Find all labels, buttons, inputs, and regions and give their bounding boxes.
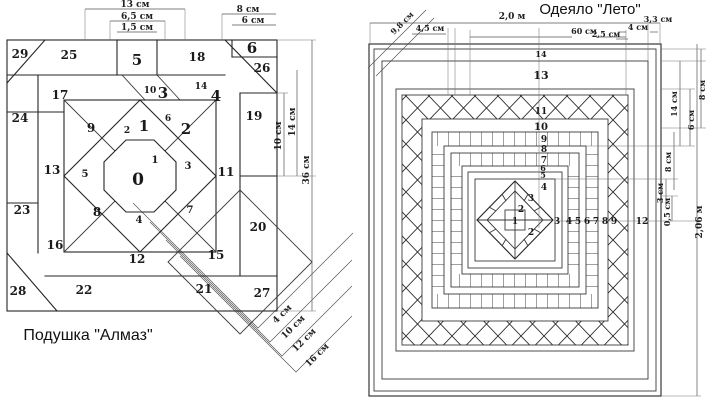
piece-9: 9 (87, 121, 95, 135)
piece-15: 15 (208, 248, 225, 262)
pillow-caption: Подушка "Алмаз" (23, 327, 152, 344)
piece-19: 19 (246, 109, 263, 123)
dim-2-06m: 2,06 м (695, 205, 705, 238)
piece-6-small: 6 (165, 114, 171, 124)
dim-1-5cm: 1,5 см (121, 23, 153, 33)
dim-2-5cm: 2,5 см (592, 29, 621, 39)
band-3-top: 3 (528, 194, 534, 204)
piece-24: 24 (12, 111, 29, 125)
piece-23: 23 (14, 203, 31, 217)
dim-13cm: 13 см (121, 0, 150, 10)
row-9: 9 (611, 217, 617, 227)
dim-6-5cm: 6,5 см (121, 12, 153, 22)
dim-4-5cm: 4,5 см (416, 23, 445, 33)
pillow-diamond-diagram: 13 см 6,5 см 1,5 см 8 см 6 см 10 см 14 с… (0, 0, 360, 405)
piece-26: 26 (254, 61, 271, 75)
piece-13: 13 (44, 163, 61, 177)
piece-8: 8 (93, 205, 101, 219)
piece-22: 22 (76, 283, 93, 297)
piece-4-small: 4 (136, 215, 143, 226)
piece-2-small: 2 (124, 126, 130, 136)
band-8: 8 (541, 145, 547, 155)
row-5: 5 (575, 217, 581, 227)
dim-10cm-right: 10 см (274, 121, 284, 150)
dim-2-0m: 2,0 м (499, 12, 526, 22)
piece-4-big: 4 (211, 87, 221, 105)
piece-28: 28 (10, 284, 27, 298)
dim-14cm: 14 см (669, 91, 679, 117)
piece-10: 10 (144, 86, 157, 96)
piece-1-small: 1 (152, 155, 159, 166)
dim-6cm: 6 см (242, 16, 265, 26)
band-13: 13 (533, 69, 548, 82)
piece-5-small: 5 (82, 169, 89, 180)
band-4: 4 (541, 183, 547, 193)
patchwork-patterns-sheet: 13 см 6,5 см 1,5 см 8 см 6 см 10 см 14 с… (0, 0, 715, 405)
dim-8cm: 8 см (237, 5, 260, 15)
piece-11: 11 (218, 165, 235, 179)
dim-14cm-right: 14 см (288, 107, 298, 136)
dim-3-3cm: 3,3 см (644, 14, 673, 24)
quilt-leto-diagram: 9,8 см 2,0 м 4,5 см 60 см 4 см 2,5 см 3,… (360, 0, 715, 405)
piece-5-big: 5 (132, 51, 142, 69)
band-3-right: 3 (554, 217, 560, 227)
dim-8cm-a: 8 см (697, 80, 707, 100)
row-12: 12 (636, 217, 649, 227)
piece-20: 20 (250, 220, 267, 234)
piece-6-big: 6 (247, 39, 257, 57)
band-14: 14 (535, 49, 547, 59)
piece-17: 17 (52, 88, 69, 102)
piece-2-big: 2 (181, 120, 191, 138)
piece-16: 16 (47, 238, 64, 252)
piece-21: 21 (196, 282, 213, 296)
piece-29: 29 (12, 47, 29, 61)
piece-25: 25 (61, 48, 78, 62)
dim-8cm-b: 8 см (663, 152, 673, 172)
dim-16cm-diagonal: 16 см (304, 342, 332, 370)
band-5: 5 (540, 170, 546, 180)
band-11: 11 (535, 107, 548, 117)
row-8: 8 (602, 217, 608, 227)
piece-7: 7 (187, 205, 194, 216)
band-10: 10 (534, 122, 548, 133)
piece-3-big: 3 (158, 84, 168, 102)
piece-27: 27 (254, 286, 271, 300)
quilt-title: Одеяло "Лето" (539, 1, 640, 18)
dim-6cm: 6 см (686, 110, 696, 130)
row-7: 7 (593, 217, 599, 227)
piece-18: 18 (189, 50, 206, 64)
pillow-piece-numbers: 29 25 5 18 6 26 17 10 3 14 4 24 9 2 1 6 … (10, 39, 271, 300)
dim-36cm-right: 36 см (302, 155, 312, 184)
band-2-bottom: 2 (528, 228, 534, 238)
piece-3-small: 3 (185, 161, 192, 172)
piece-0-center: 0 (132, 170, 144, 190)
row-4: 4 (566, 217, 572, 227)
dim-0-5cm: 0,5 см (662, 198, 672, 227)
piece-12: 12 (129, 252, 146, 266)
band-2-top: 2 (518, 205, 524, 215)
row-6: 6 (584, 217, 590, 227)
band-9: 9 (541, 135, 547, 145)
pillow-dimension-labels: 13 см 6,5 см 1,5 см 8 см 6 см 10 см 14 с… (121, 0, 332, 369)
band-1-center: 1 (512, 217, 518, 227)
piece-1-big: 1 (139, 117, 149, 135)
piece-14: 14 (195, 82, 208, 92)
